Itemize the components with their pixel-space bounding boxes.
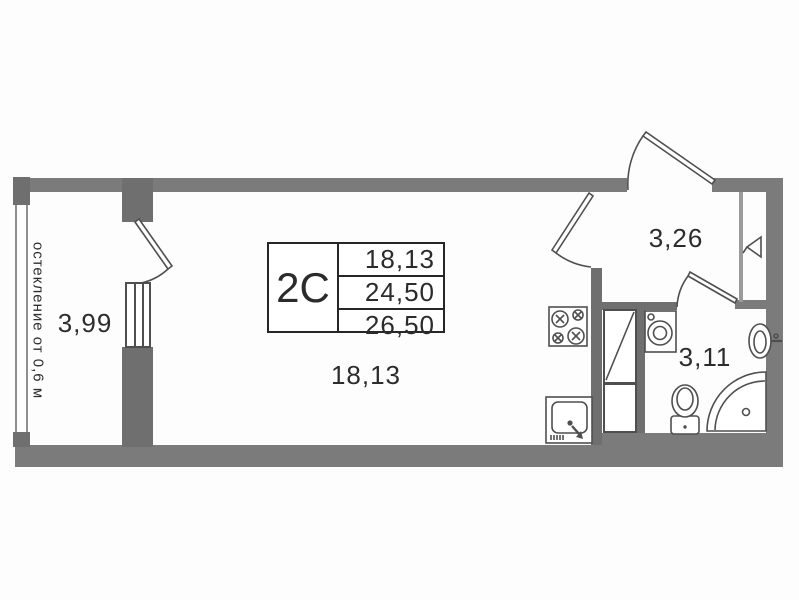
vent-shaft-icon <box>606 312 634 380</box>
bathroom-door-swing-icon <box>677 272 737 307</box>
washing-machine-icon <box>645 311 676 352</box>
kitchen-sink-icon <box>546 397 592 443</box>
unit-area-total: 24,50 <box>339 275 443 308</box>
unit-area-rows: 18,13 24,50 26,50 <box>339 244 443 331</box>
balcony-area-label: 3,99 <box>55 308 115 339</box>
washbasin-icon <box>749 324 782 358</box>
unit-type-label: 2C <box>269 244 339 331</box>
wardrobe-icon <box>743 237 761 257</box>
glazing-note: остекление от 0,6 м <box>30 236 47 406</box>
floor-plan: 2C 18,13 24,50 26,50 3,99 18,13 3,26 3,1… <box>0 0 799 600</box>
unit-area-living: 18,13 <box>339 244 443 275</box>
unit-info-table: 2C 18,13 24,50 26,50 <box>267 242 445 333</box>
unit-area-with-balcony: 26,50 <box>339 308 443 341</box>
toilet-icon <box>671 385 699 434</box>
corner-bathtub-icon <box>707 372 766 431</box>
bath-area-label: 3,11 <box>675 342 735 373</box>
balcony-door-swing-icon <box>135 219 172 283</box>
hall-area-label: 3,26 <box>645 223 707 254</box>
stove-icon <box>549 307 587 346</box>
room-door-swing-icon <box>552 193 593 267</box>
living-area-label: 18,13 <box>327 360 405 391</box>
entrance-door-swing-icon <box>628 132 715 190</box>
